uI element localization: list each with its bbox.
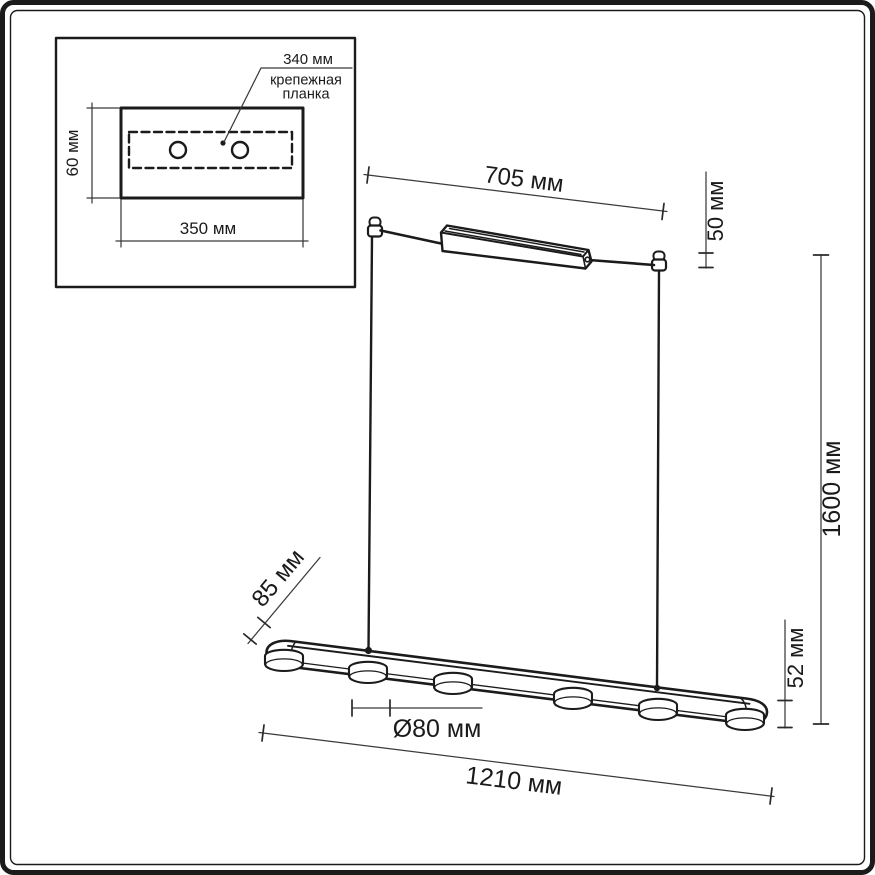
screw-hole-right [232,142,248,158]
suspension-cable-right [657,271,659,688]
spot-head [349,662,387,683]
dim-1210-label: 1210 мм [464,761,564,801]
dim-350-label: 350 мм [180,219,236,238]
suspension-cable-left [369,237,373,651]
spot-head [726,709,764,730]
dim-60-label: 60 мм [63,129,82,176]
cable-junction-right [654,685,660,691]
dim-340-label: 340 мм [283,51,333,68]
dim-52-label: 52 мм [783,628,808,689]
mounting-inset: 340 мм крепежная планка 60 мм 350 мм [56,38,355,287]
dim-705-tick-left [367,167,369,183]
dim-1210-tick-left [262,725,264,741]
dim-85-label: 85 мм [247,544,310,612]
spot-head [434,673,472,694]
canopy-wire-left [381,231,442,244]
canopy-wire-right [589,260,654,265]
dim-50-label: 50 мм [703,181,728,242]
dim-80-label: Ø80 мм [393,715,482,743]
technical-drawing-page: 340 мм крепежная планка 60 мм 350 мм [0,0,875,875]
dim-1600-label: 1600 мм [818,441,846,538]
mounting-plate-dashed-rect [129,132,292,168]
suspension-stud-left [368,218,382,237]
cable-junction-left [365,647,372,654]
canopy-box [441,226,592,269]
spot-head [265,650,303,671]
dim-1210-tick-right [770,788,772,804]
dim-705-tick-right [662,204,664,220]
light-bar [266,641,767,724]
suspension-stud-right [652,252,666,271]
dim-705-label: 705 мм [483,161,565,198]
mounting-plate-label-line2: планка [282,87,330,103]
screw-hole-left [170,142,186,158]
pendant-light-dimension-drawing: 340 мм крепежная планка 60 мм 350 мм [0,0,875,875]
canopy-plan-rect [121,108,303,198]
pendant-fixture [265,218,767,731]
spot-head [554,688,592,709]
spot-head [639,699,677,720]
